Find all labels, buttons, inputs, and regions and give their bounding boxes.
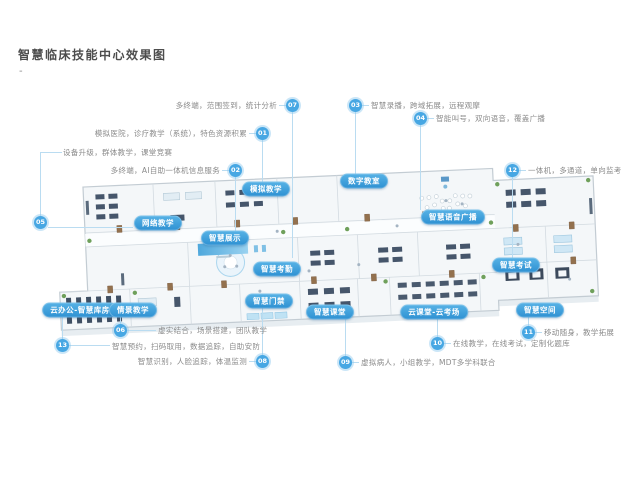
leader-line <box>519 170 526 171</box>
callout-08-label: 智慧识别，人脸追踪，体温监测 <box>138 356 247 367</box>
callout-06-label: 虚实结合，场景搭建，团队教学 <box>158 325 267 336</box>
leader-line <box>535 332 542 333</box>
callout-07-badge[interactable]: 07 <box>286 99 299 112</box>
leader-line <box>69 345 110 346</box>
leader-line <box>444 343 451 344</box>
map-tag-voice-broadcast[interactable]: 智慧语音广播 <box>421 210 485 225</box>
callout-03-label: 智慧录播，跨域拓展，远程观摩 <box>371 100 480 111</box>
leader-line <box>352 362 359 363</box>
leader-line <box>222 170 229 171</box>
callout-04-badge[interactable]: 04 <box>414 112 427 125</box>
callout-05-label: 设备升级，群体教学，课堂竞赛 <box>63 147 172 158</box>
map-tag-smart-classroom[interactable]: 智慧课堂 <box>306 305 354 320</box>
map-tag-smart-exhibition[interactable]: 智慧展示 <box>201 231 249 246</box>
leader-line <box>279 105 286 106</box>
callout-10-badge[interactable]: 10 <box>431 337 444 350</box>
callout-05-badge[interactable]: 05 <box>34 216 47 229</box>
leader-line <box>48 227 133 228</box>
map-tag-smart-exam[interactable]: 智慧考试 <box>492 258 540 273</box>
callout-09-label: 虚拟病人，小组教学，MDT多学科联合 <box>361 357 496 368</box>
map-tag-smart-access[interactable]: 智慧门禁 <box>245 294 293 309</box>
canvas: 智慧临床技能中心效果图 - <box>0 0 640 480</box>
map-tag-smart-attendance[interactable]: 智慧考勤 <box>253 262 301 277</box>
map-tag-scenario-teaching[interactable]: 情景教学 <box>109 303 157 318</box>
leader-line <box>249 361 256 362</box>
callout-09-badge[interactable]: 09 <box>339 356 352 369</box>
callout-06-badge[interactable]: 06 <box>114 324 127 337</box>
callout-03-badge[interactable]: 03 <box>349 99 362 112</box>
callout-07-label: 多终端，范围签到，统计分析 <box>176 100 277 111</box>
callout-12-label: 一体机，多通道，单向监考 <box>528 165 622 176</box>
callout-02-badge[interactable]: 02 <box>229 164 242 177</box>
leader-line <box>249 133 256 134</box>
leader-line <box>512 176 513 258</box>
floorplan-illustration <box>48 158 608 348</box>
map-tag-cloud-classroom-exam[interactable]: 云课堂-云考场 <box>400 305 468 320</box>
callout-13-label: 智慧预约，扫码取用，数据追踪，自助安防 <box>112 341 260 352</box>
leader-line <box>345 318 346 357</box>
leader-line <box>40 152 41 217</box>
leader-line <box>437 318 438 338</box>
leader-line <box>427 118 434 119</box>
leader-line <box>235 176 236 233</box>
leader-line <box>127 330 156 331</box>
callout-01-badge[interactable]: 01 <box>256 127 269 140</box>
callout-13-badge[interactable]: 13 <box>56 339 69 352</box>
callout-11-badge[interactable]: 11 <box>522 326 535 339</box>
map-tag-cloud-office-storeroom[interactable]: 云办公-智慧库房 <box>42 303 118 318</box>
callout-02-label: 多终端，AI自助一体机信息服务 <box>111 165 220 176</box>
callout-12-badge[interactable]: 12 <box>506 164 519 177</box>
leader-line <box>355 111 356 175</box>
callout-10-label: 在线教学，在线考试，定制化题库 <box>453 338 570 349</box>
leader-line <box>420 124 421 210</box>
leader-line <box>362 105 369 106</box>
map-tag-digital-classroom[interactable]: 数字教室 <box>340 174 388 189</box>
callout-04-label: 智能叫号，双向语音，覆盖广播 <box>436 113 545 124</box>
leader-line <box>62 317 63 340</box>
page-title: 智慧临床技能中心效果图 <box>18 46 167 63</box>
map-tag-simulation-teaching[interactable]: 模拟教学 <box>242 182 290 197</box>
leader-line <box>40 152 62 153</box>
map-tag-network-teaching[interactable]: 网络教学 <box>134 216 182 231</box>
callout-11-label: 移动随身，教学拓展 <box>544 327 614 338</box>
callout-08-badge[interactable]: 08 <box>256 355 269 368</box>
title-dash: - <box>19 66 23 77</box>
leader-line <box>292 111 293 258</box>
leader-line <box>262 139 263 183</box>
callout-01-label: 模拟医院，诊疗教学（系统），特色资源积累 <box>95 128 247 139</box>
map-tag-smart-space[interactable]: 智慧空间 <box>516 303 564 318</box>
